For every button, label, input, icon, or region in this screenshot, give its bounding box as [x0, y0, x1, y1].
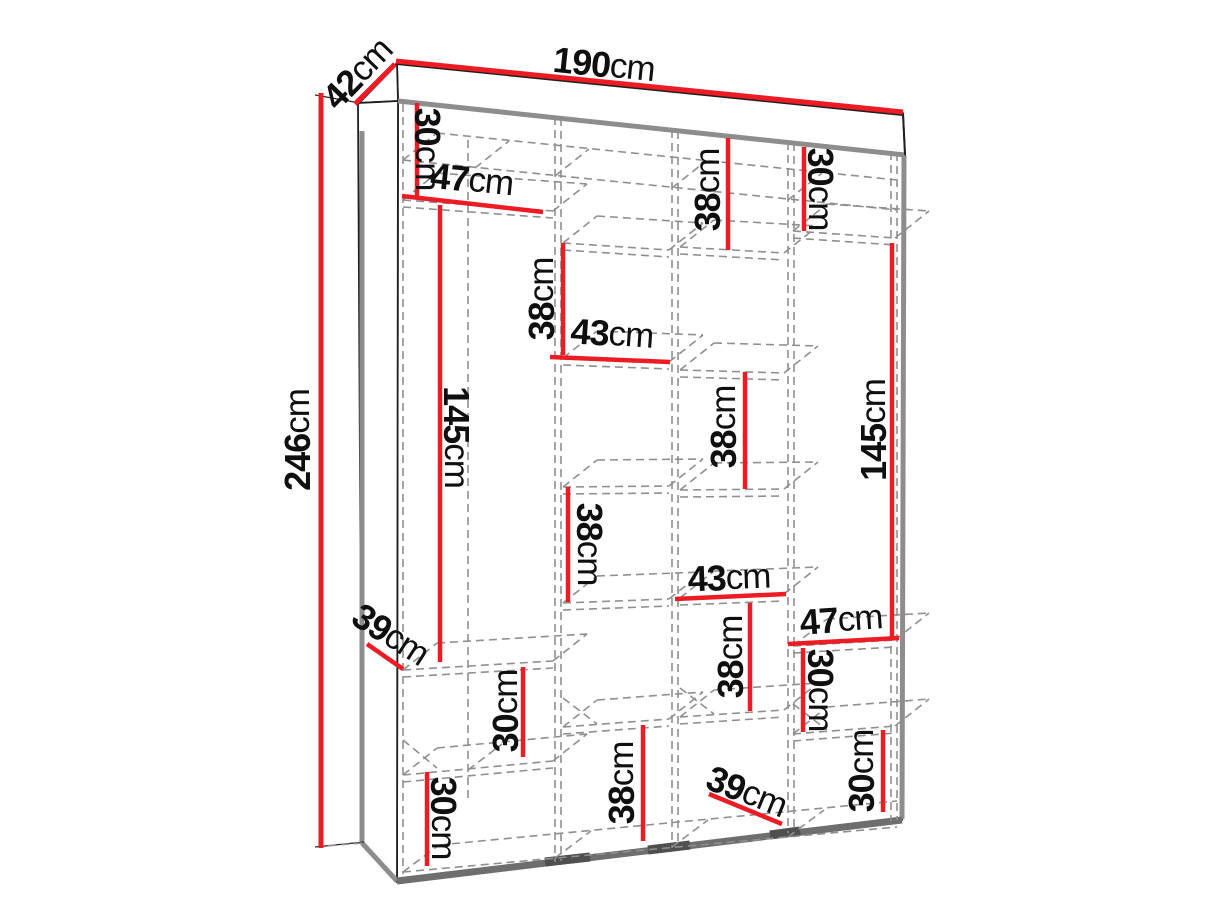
diagram-canvas: 190cm 42cm 246cm 30cm 47cm 145cm 39cm 30… — [0, 0, 1214, 911]
dim-label-c1-30cm-bottom: 30cm — [424, 777, 465, 860]
dim-label-c3-38cm-top: 38cm — [687, 149, 728, 232]
dim-label-c2-38cm-bottom: 38cm — [601, 742, 642, 825]
dim-label-height-246cm: 246cm — [277, 389, 318, 491]
dim-label-c2-38cm-upper: 38cm — [521, 258, 562, 341]
dim-label-c3-38cm-middle: 38cm — [703, 386, 744, 469]
dim-label-c1-145cm: 145cm — [437, 386, 478, 488]
dim-label-c2-38cm-middle: 38cm — [570, 503, 611, 586]
dim-label-c4-30cm-lower: 30cm — [801, 649, 842, 732]
right-edge — [902, 156, 904, 819]
dim-label-c1-47cm: 47cm — [429, 154, 516, 203]
plinth-foot-right — [770, 831, 800, 835]
dim-label-c4-30cm-bottom: 30cm — [841, 730, 882, 813]
dim-label-c4-145cm: 145cm — [853, 379, 894, 481]
dim-label-c2-43cm: 43cm — [569, 310, 654, 357]
dim-label-c3-38cm-lower: 38cm — [710, 616, 751, 699]
dim-label-c3-43cm: 43cm — [687, 555, 771, 599]
dim-label-c4-30cm-top: 30cm — [801, 148, 842, 231]
wardrobe-dimension-diagram: 190cm 42cm 246cm 30cm 47cm 145cm 39cm 30… — [0, 0, 1214, 911]
dim-label-c4-47cm: 47cm — [798, 596, 883, 643]
dim-label-c1-30cm-lower: 30cm — [485, 670, 526, 753]
